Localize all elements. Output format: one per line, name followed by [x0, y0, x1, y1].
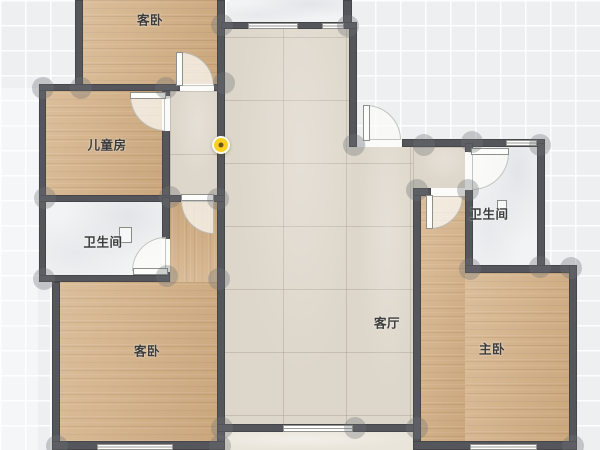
wall[interactable]	[537, 143, 545, 273]
door-opening	[366, 139, 402, 147]
room-label-guest-bedroom-top: 客卧	[137, 10, 163, 29]
window[interactable]	[248, 23, 298, 29]
room-area-balcony-bottom[interactable]	[225, 432, 413, 450]
wall[interactable]	[349, 22, 357, 147]
wall-joint-handle[interactable]	[211, 14, 233, 36]
door-leaf[interactable]	[176, 52, 183, 86]
room-label-kids-room: 儿童房	[87, 135, 126, 154]
room-area-living-room-right[interactable]	[351, 147, 413, 424]
wall-joint-handle[interactable]	[32, 77, 54, 99]
background-highlight	[0, 88, 38, 450]
room-label-living-room: 客厅	[374, 313, 400, 332]
room-area-living-room[interactable]	[225, 29, 351, 424]
room-label-bathroom-left: 卫生间	[83, 232, 122, 251]
wall-joint-handle[interactable]	[457, 179, 479, 201]
wall-joint-handle[interactable]	[529, 256, 551, 278]
window[interactable]	[470, 444, 537, 450]
wall[interactable]	[39, 275, 170, 282]
wall[interactable]	[569, 265, 577, 450]
wall-joint-handle[interactable]	[34, 187, 56, 209]
wall-joint-handle[interactable]	[211, 417, 233, 439]
wall-joint-handle[interactable]	[343, 134, 365, 156]
room-area-master-bedroom-arm[interactable]	[421, 196, 465, 441]
wall-joint-handle[interactable]	[213, 72, 235, 94]
room-label-guest-bedroom-bottom: 客卧	[134, 341, 160, 360]
room-area-balcony-top[interactable]	[229, 0, 344, 22]
wall-joint-handle[interactable]	[70, 77, 92, 99]
wall-joint-handle[interactable]	[344, 417, 366, 439]
wall-joint-handle[interactable]	[529, 134, 551, 156]
wall-joint-handle[interactable]	[459, 258, 481, 280]
room-area-guest-bedroom-bottom[interactable]	[60, 282, 217, 441]
wall-joint-handle[interactable]	[33, 268, 55, 290]
wall-joint-handle[interactable]	[406, 417, 428, 439]
wall-joint-handle[interactable]	[46, 435, 68, 450]
room-label-bathroom-right: 卫生间	[469, 204, 508, 223]
wall-joint-handle[interactable]	[337, 15, 359, 37]
wall-joint-handle[interactable]	[208, 268, 230, 290]
wall-joint-handle[interactable]	[406, 179, 428, 201]
wall-joint-handle[interactable]	[156, 265, 178, 287]
door-leaf[interactable]	[363, 105, 370, 141]
wall[interactable]	[75, 0, 83, 88]
wall[interactable]	[413, 188, 421, 450]
door-leaf[interactable]	[426, 195, 433, 229]
wall-joint-handle[interactable]	[461, 131, 483, 153]
wall[interactable]	[52, 282, 60, 450]
camera-viewpoint-marker-icon[interactable]	[212, 136, 230, 154]
floorplan-canvas[interactable]: 客卧 儿童房 卫生间 客卧 客厅 卫生间 主卧	[0, 0, 600, 450]
wall-joint-handle[interactable]	[562, 435, 584, 450]
wall-joint-handle[interactable]	[155, 77, 177, 99]
wall-joint-handle[interactable]	[560, 257, 582, 279]
room-area-hallway[interactable]	[170, 91, 217, 195]
window[interactable]	[283, 425, 353, 432]
window[interactable]	[97, 444, 173, 450]
room-label-master-bedroom: 主卧	[479, 339, 505, 358]
wall-joint-handle[interactable]	[413, 134, 435, 156]
wall[interactable]	[39, 84, 46, 282]
wall-joint-handle[interactable]	[159, 186, 181, 208]
door-swing-arc	[366, 105, 401, 140]
wall[interactable]	[217, 0, 225, 450]
wall-joint-handle[interactable]	[207, 188, 229, 210]
